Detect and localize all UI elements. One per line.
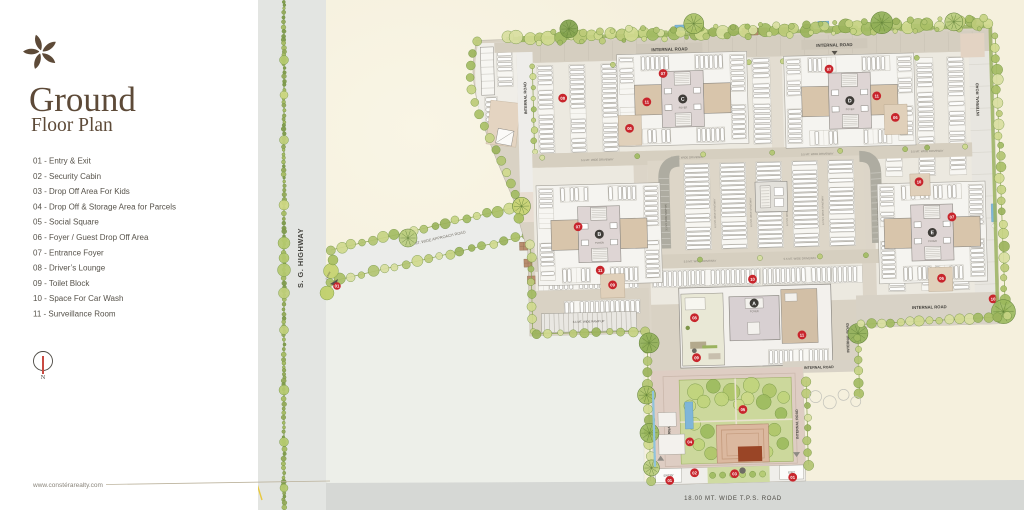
svg-text:3.1 MT. WIDE RAMP UP: 3.1 MT. WIDE RAMP UP: [573, 319, 605, 324]
svg-text:D: D: [848, 98, 852, 104]
svg-text:01: 01: [667, 478, 672, 483]
svg-text:Ground: Ground: [29, 80, 136, 119]
svg-text:FOYER: FOYER: [846, 108, 855, 111]
svg-text:07: 07: [950, 214, 955, 219]
svg-text:07: 07: [827, 67, 832, 72]
svg-text:11 - Surveillance Room: 11 - Surveillance Room: [33, 310, 116, 319]
svg-text:18.00 MT. WIDE T.P.S. ROAD: 18.00 MT. WIDE T.P.S. ROAD: [684, 496, 782, 502]
svg-text:09: 09: [694, 355, 699, 360]
svg-text:INTERNAL ROAD: INTERNAL ROAD: [795, 409, 800, 439]
svg-text:11: 11: [598, 268, 603, 273]
svg-text:02: 02: [692, 470, 697, 475]
svg-text:09 - Toilet Block: 09 - Toilet Block: [33, 279, 90, 288]
svg-text:INTERNAL ROAD: INTERNAL ROAD: [804, 365, 834, 370]
svg-text:01: 01: [790, 475, 795, 480]
svg-text:FOYER: FOYER: [679, 106, 688, 109]
svg-text:04 - Drop Off & Storage Area f: 04 - Drop Off & Storage Area for Parcels: [33, 202, 176, 211]
svg-text:06 - Foyer / Guest Drop Off Ar: 06 - Foyer / Guest Drop Off Area: [33, 233, 149, 242]
svg-text:05: 05: [741, 407, 746, 412]
svg-text:08: 08: [692, 315, 697, 320]
svg-text:03: 03: [732, 471, 737, 476]
svg-text:INTERNAL ROAD: INTERNAL ROAD: [522, 82, 528, 114]
svg-text:08 - Driver’s Lounge: 08 - Driver’s Lounge: [33, 264, 106, 273]
svg-text:INTERNAL ROAD: INTERNAL ROAD: [651, 46, 687, 52]
svg-text:FOYER: FOYER: [928, 240, 937, 243]
svg-text:INTERNAL ROAD: INTERNAL ROAD: [816, 42, 852, 48]
svg-text:04: 04: [687, 439, 692, 444]
svg-text:10: 10: [917, 179, 922, 184]
svg-text:02 - Security Cabin: 02 - Security Cabin: [33, 172, 101, 181]
svg-text:03 - Drop Off Area For Kids: 03 - Drop Off Area For Kids: [33, 187, 130, 196]
svg-text:10: 10: [991, 296, 996, 301]
svg-text:N: N: [41, 374, 46, 381]
svg-text:06: 06: [627, 126, 632, 131]
svg-text:07: 07: [576, 224, 581, 229]
svg-text:05 - Social Square: 05 - Social Square: [33, 218, 99, 227]
svg-text:08: 08: [560, 96, 565, 101]
svg-text:B: B: [597, 232, 601, 238]
svg-text:Floor Plan: Floor Plan: [31, 115, 113, 136]
svg-text:01 - Entry & Exit: 01 - Entry & Exit: [33, 157, 92, 166]
svg-text:INTERNAL ROAD: INTERNAL ROAD: [974, 83, 980, 116]
svg-text:S. G. HIGHWAY: S. G. HIGHWAY: [296, 228, 305, 288]
svg-text:11: 11: [800, 332, 805, 337]
svg-text:06: 06: [939, 276, 944, 281]
svg-text:11: 11: [645, 99, 650, 104]
svg-text:www.constérarealty.com: www.constérarealty.com: [32, 482, 103, 489]
svg-text:09: 09: [610, 282, 615, 287]
svg-text:A: A: [752, 301, 756, 307]
svg-text:10 - Space For Car Wash: 10 - Space For Car Wash: [33, 294, 123, 303]
svg-text:FOYER: FOYER: [595, 242, 604, 245]
svg-text:FOYER: FOYER: [750, 310, 759, 313]
svg-text:06: 06: [893, 115, 898, 120]
svg-text:11: 11: [874, 93, 879, 98]
svg-text:07: 07: [661, 71, 666, 76]
svg-text:INTERNAL ROAD: INTERNAL ROAD: [912, 304, 947, 310]
svg-text:C: C: [681, 97, 685, 103]
svg-text:07 - Entrance Foyer: 07 - Entrance Foyer: [33, 248, 104, 257]
svg-text:01: 01: [335, 284, 340, 289]
svg-text:10: 10: [750, 277, 755, 282]
